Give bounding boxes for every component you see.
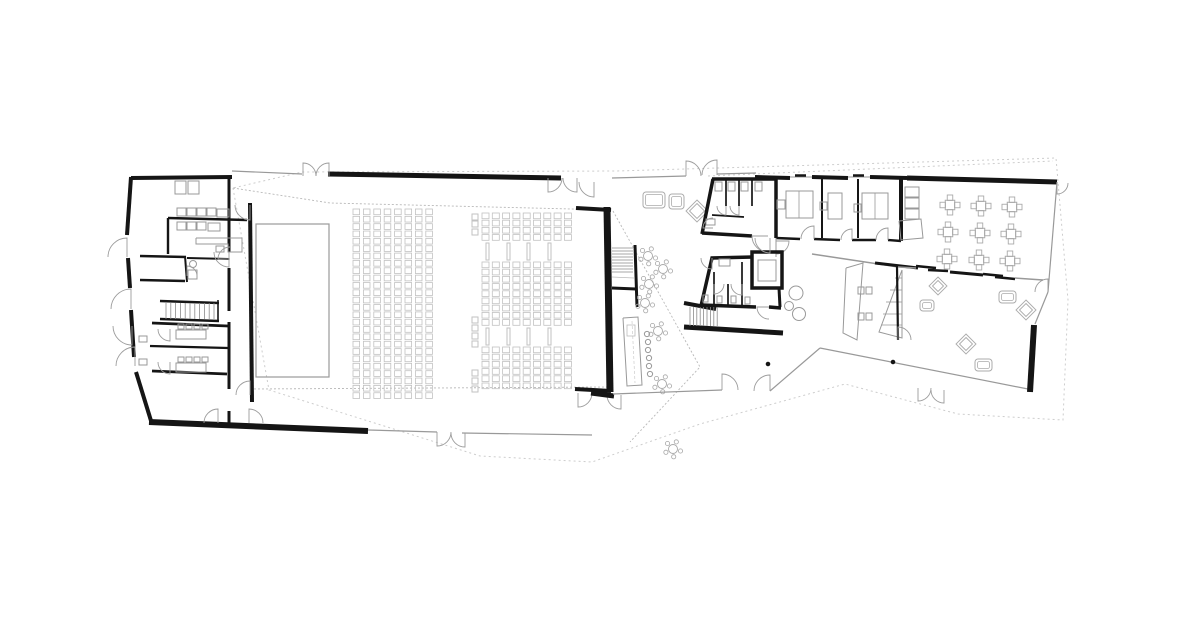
sanitary-lift-block-center [684,238,806,333]
projection-lines [233,188,700,442]
lounge [918,277,1048,403]
auditorium [232,163,621,447]
floor-plan-canvas [0,0,1200,643]
cafeteria [898,178,1068,292]
offices-north [755,176,907,258]
sanitary-block-north [702,179,777,252]
floor-plan-svg [0,0,1200,643]
